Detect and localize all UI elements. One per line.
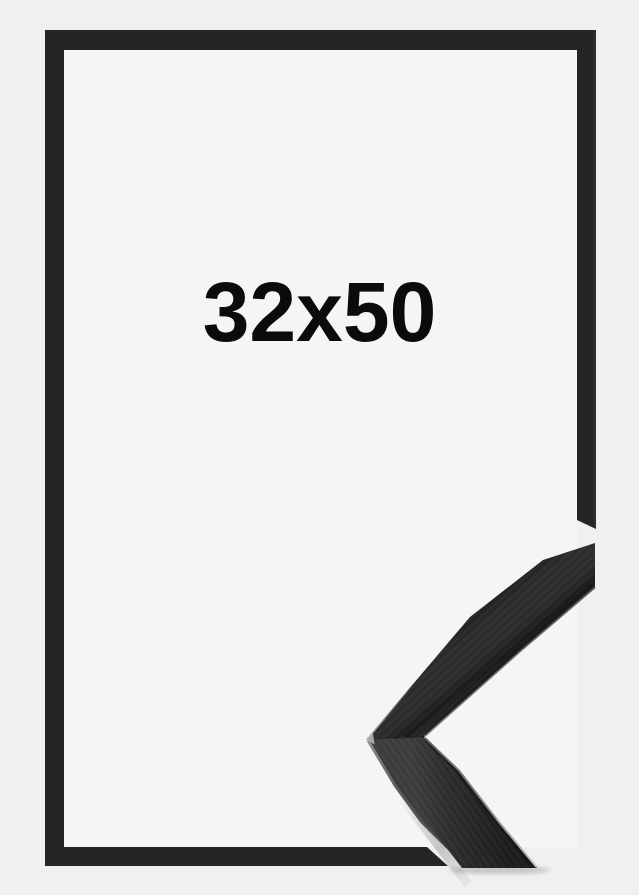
frame-border-bottom [45,847,448,866]
frame-border-top [45,30,596,50]
frame-opening [64,50,577,847]
frame-graphic [0,0,639,895]
size-label: 32x50 [0,270,639,354]
frame-border-left [45,30,64,866]
frame-product-image: 32x50 [0,0,639,895]
